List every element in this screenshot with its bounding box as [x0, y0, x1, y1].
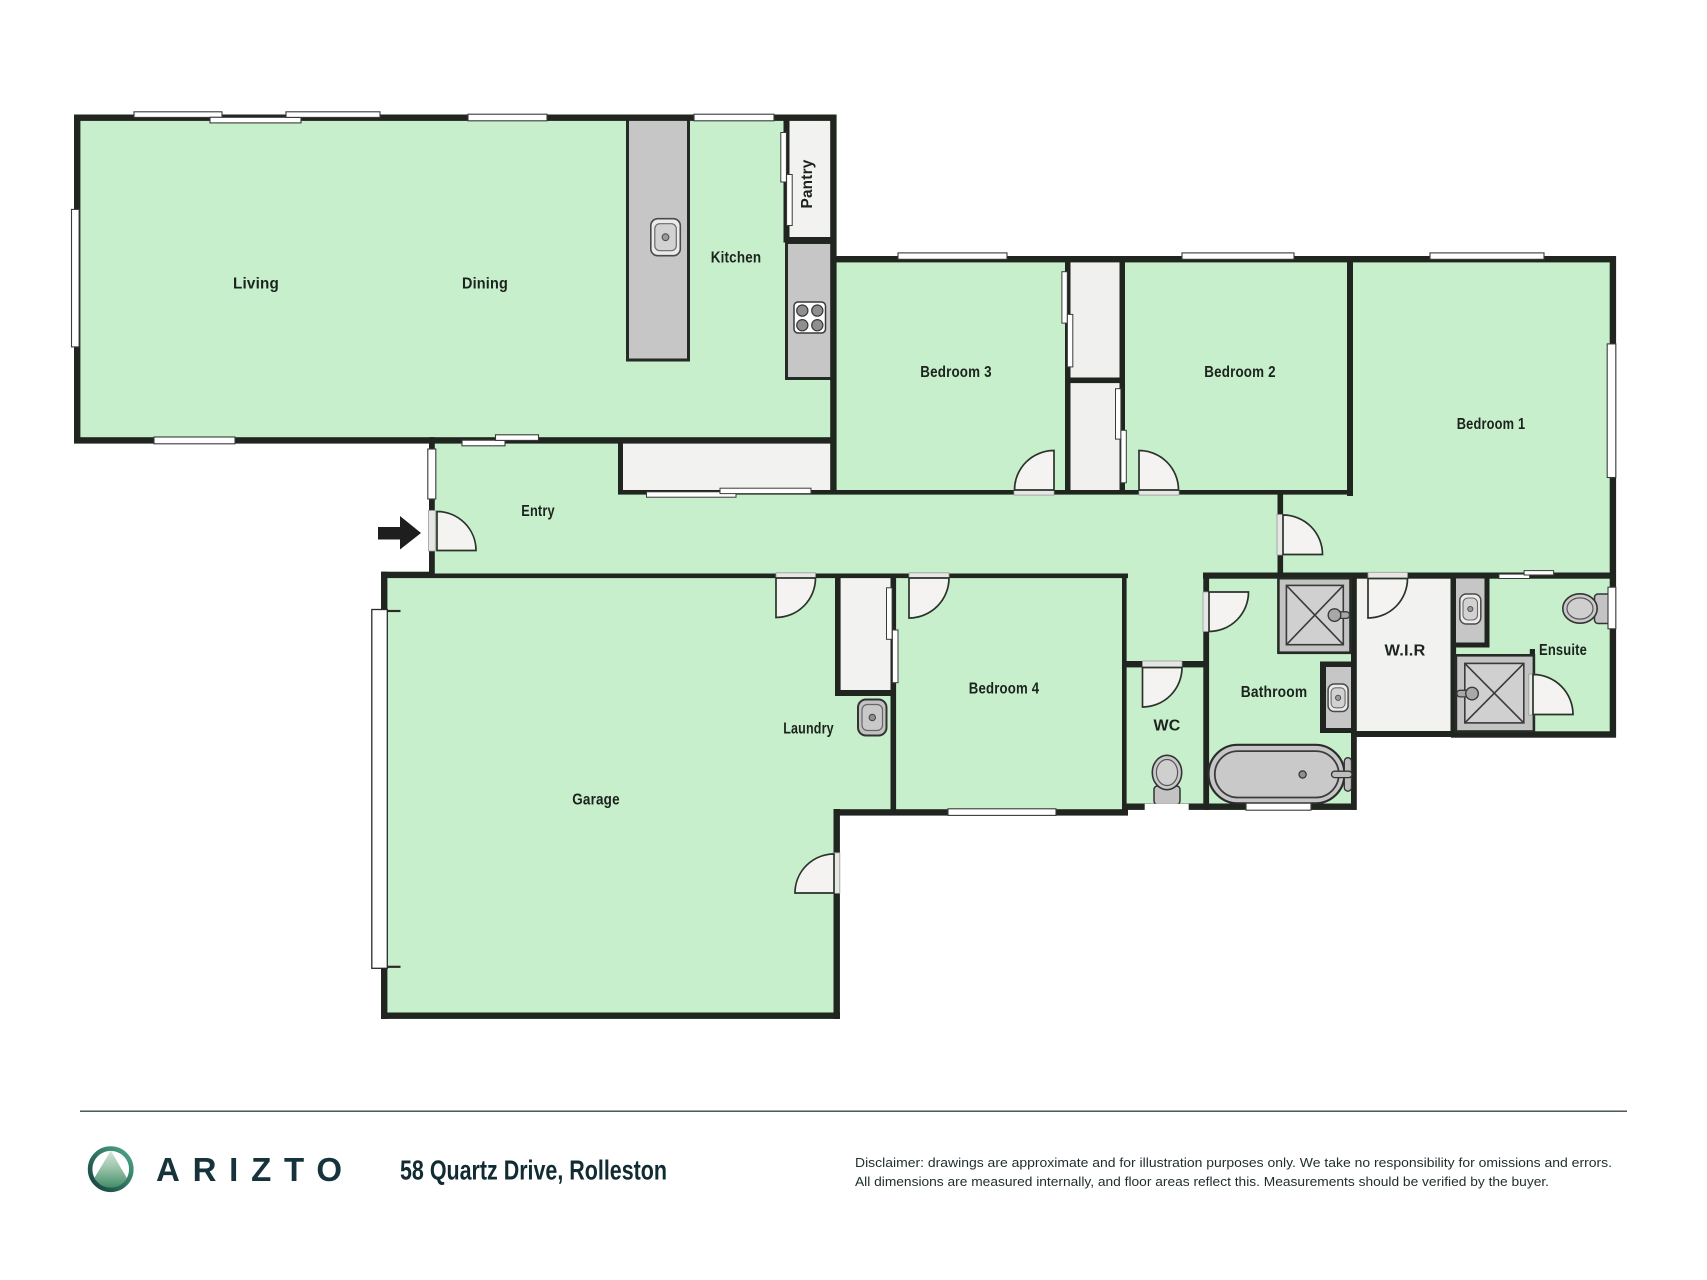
svg-text:Bedroom 1: Bedroom 1	[1457, 416, 1526, 433]
svg-text:58 Quartz Drive, Rolleston: 58 Quartz Drive, Rolleston	[400, 1155, 667, 1186]
svg-text:Kitchen: Kitchen	[711, 250, 762, 267]
svg-text:W.I.R: W.I.R	[1385, 643, 1426, 660]
svg-text:Bedroom 2: Bedroom 2	[1204, 364, 1276, 381]
svg-text:Dining: Dining	[462, 276, 508, 293]
svg-text:Entry: Entry	[521, 503, 555, 520]
svg-text:Living: Living	[233, 276, 279, 293]
svg-text:Bathroom: Bathroom	[1241, 684, 1308, 701]
svg-text:Bedroom 4: Bedroom 4	[969, 681, 1040, 698]
svg-text:Garage: Garage	[572, 792, 620, 809]
svg-text:All dimensions are measured in: All dimensions are measured internally, …	[855, 1174, 1549, 1189]
svg-text:WC: WC	[1154, 718, 1181, 735]
svg-text:Bedroom 3: Bedroom 3	[920, 364, 992, 381]
svg-text:Laundry: Laundry	[783, 721, 834, 738]
svg-text:Pantry: Pantry	[799, 159, 816, 208]
svg-text:Disclaimer: drawings are appro: Disclaimer: drawings are approximate and…	[855, 1155, 1612, 1170]
svg-text:Ensuite: Ensuite	[1539, 642, 1587, 659]
